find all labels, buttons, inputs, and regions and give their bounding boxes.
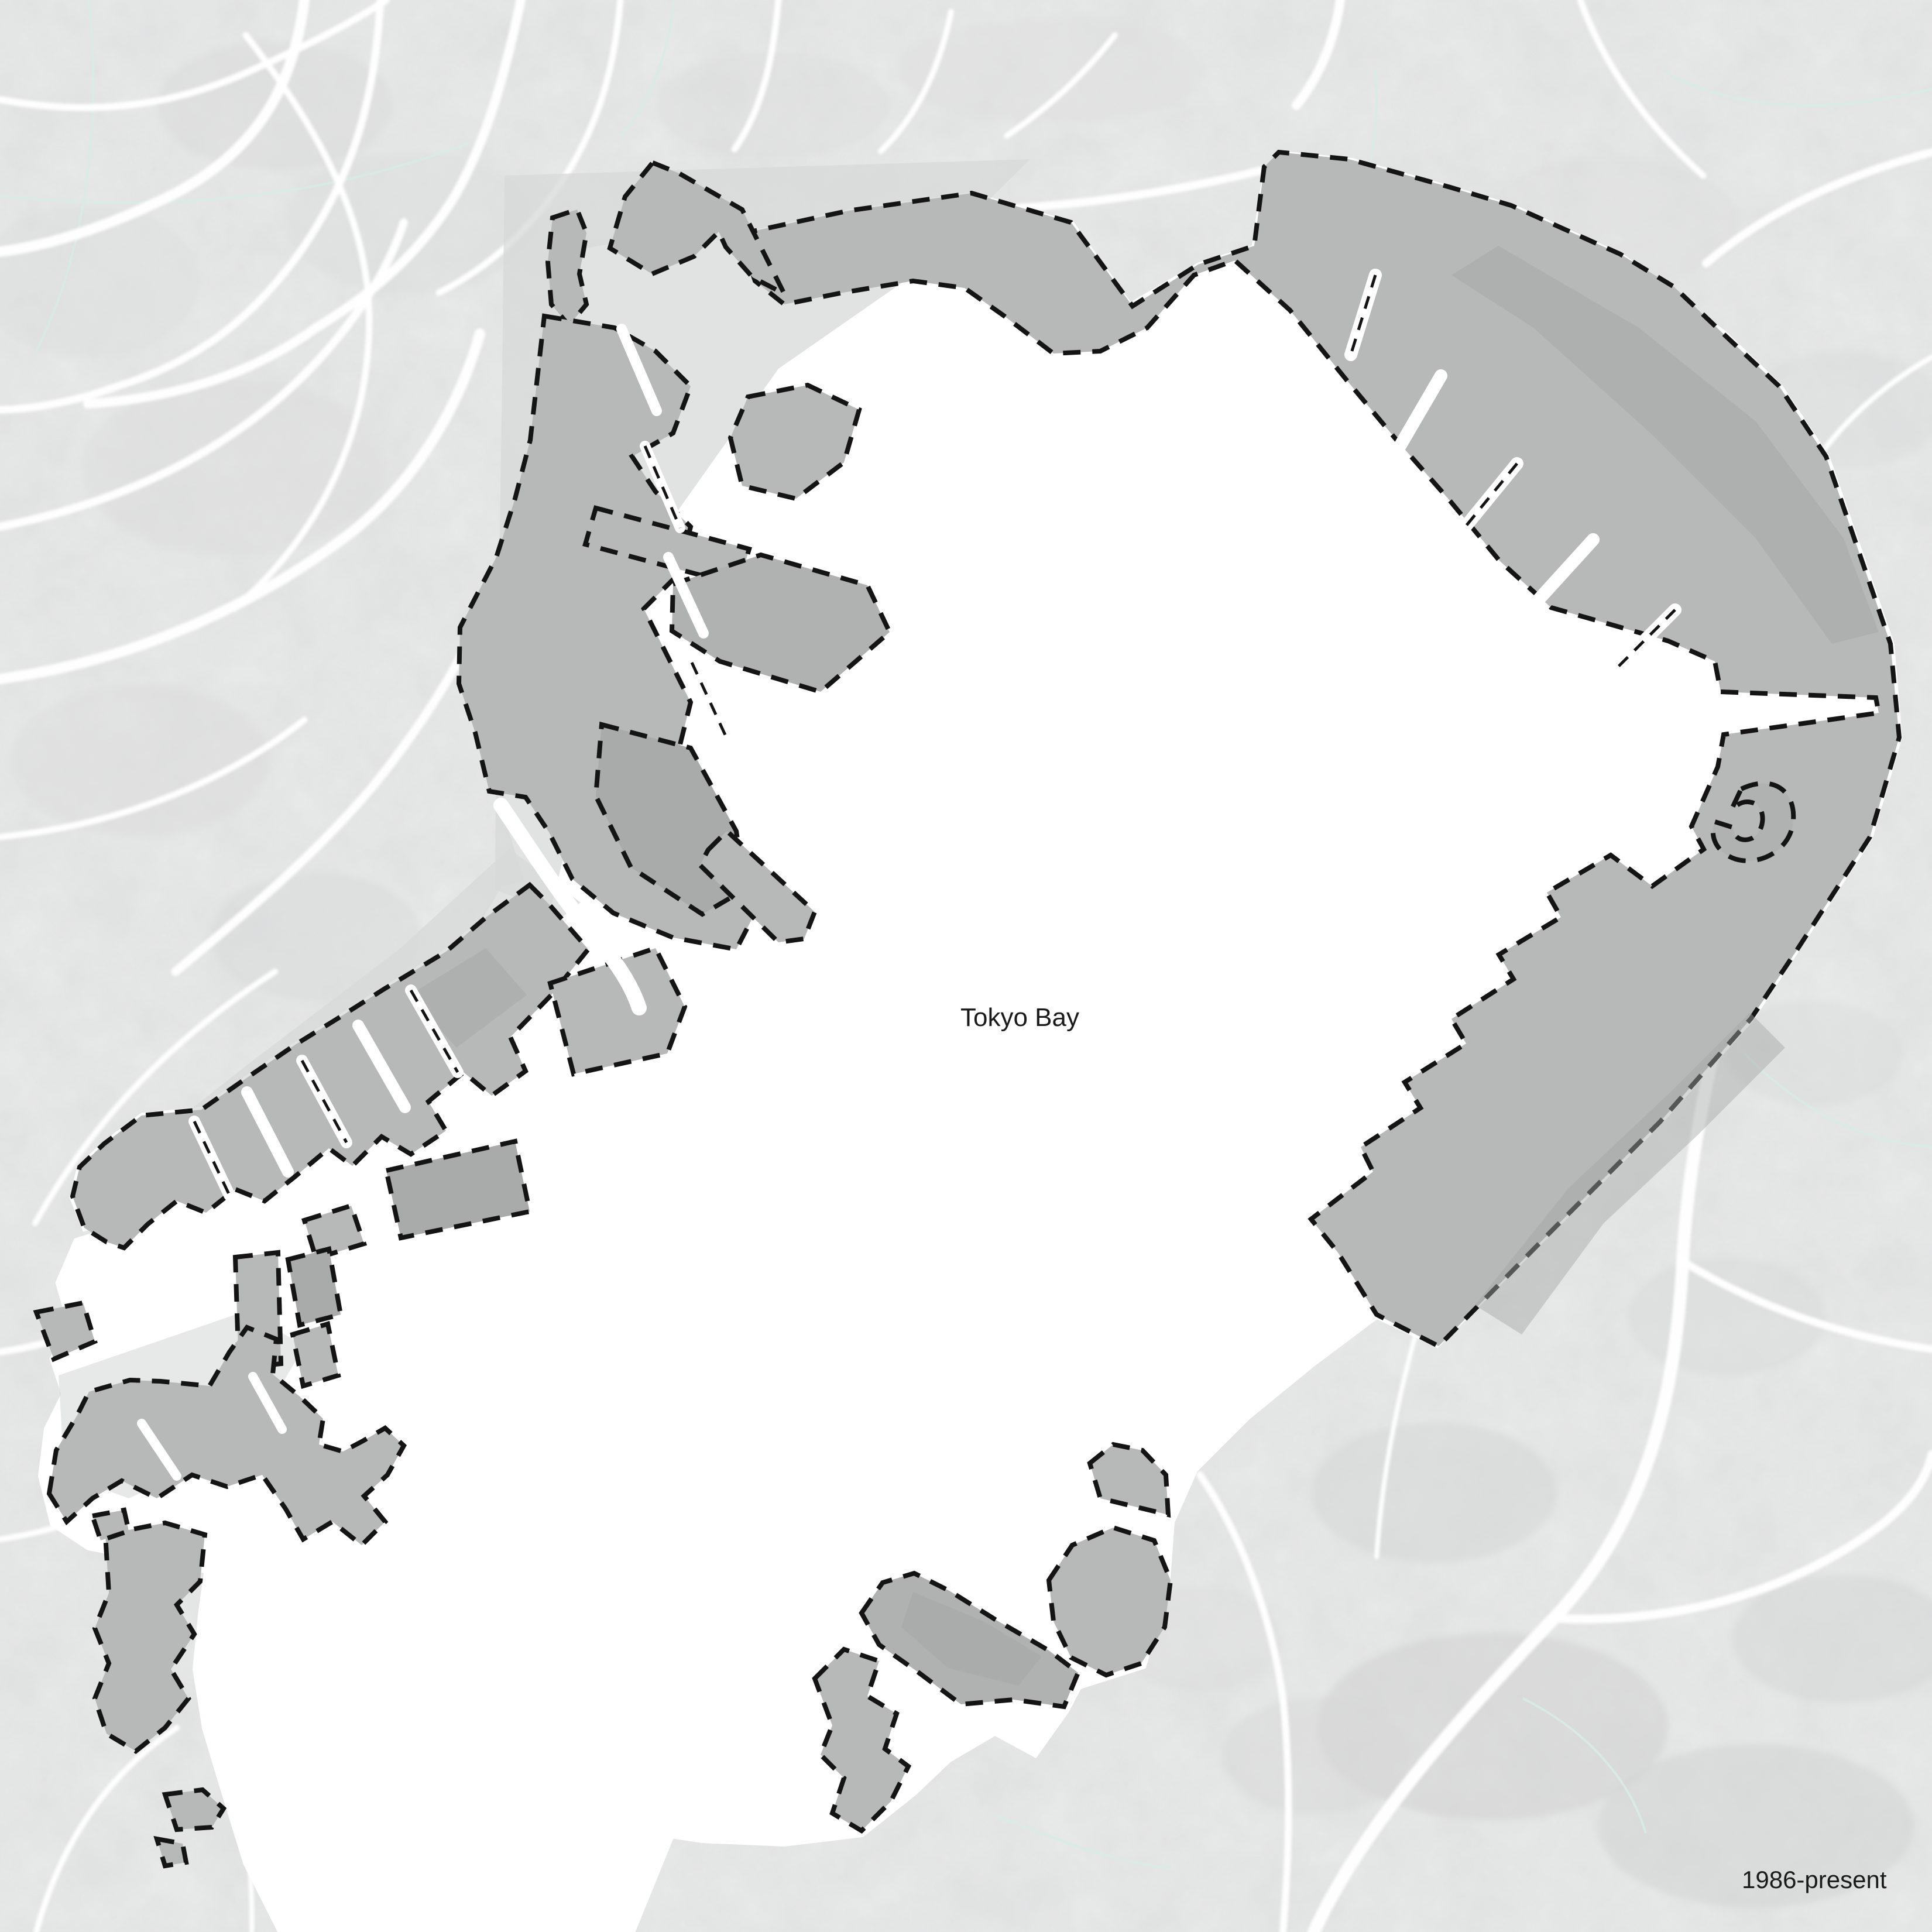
map-canvas: Tokyo Bay 1986-present — [0, 0, 1932, 1932]
bay-label: Tokyo Bay — [960, 1003, 1079, 1032]
period-label: 1986-present — [1742, 1866, 1887, 1893]
tokyo-bay-reclamation-map: Tokyo Bay 1986-present — [0, 0, 1932, 1932]
